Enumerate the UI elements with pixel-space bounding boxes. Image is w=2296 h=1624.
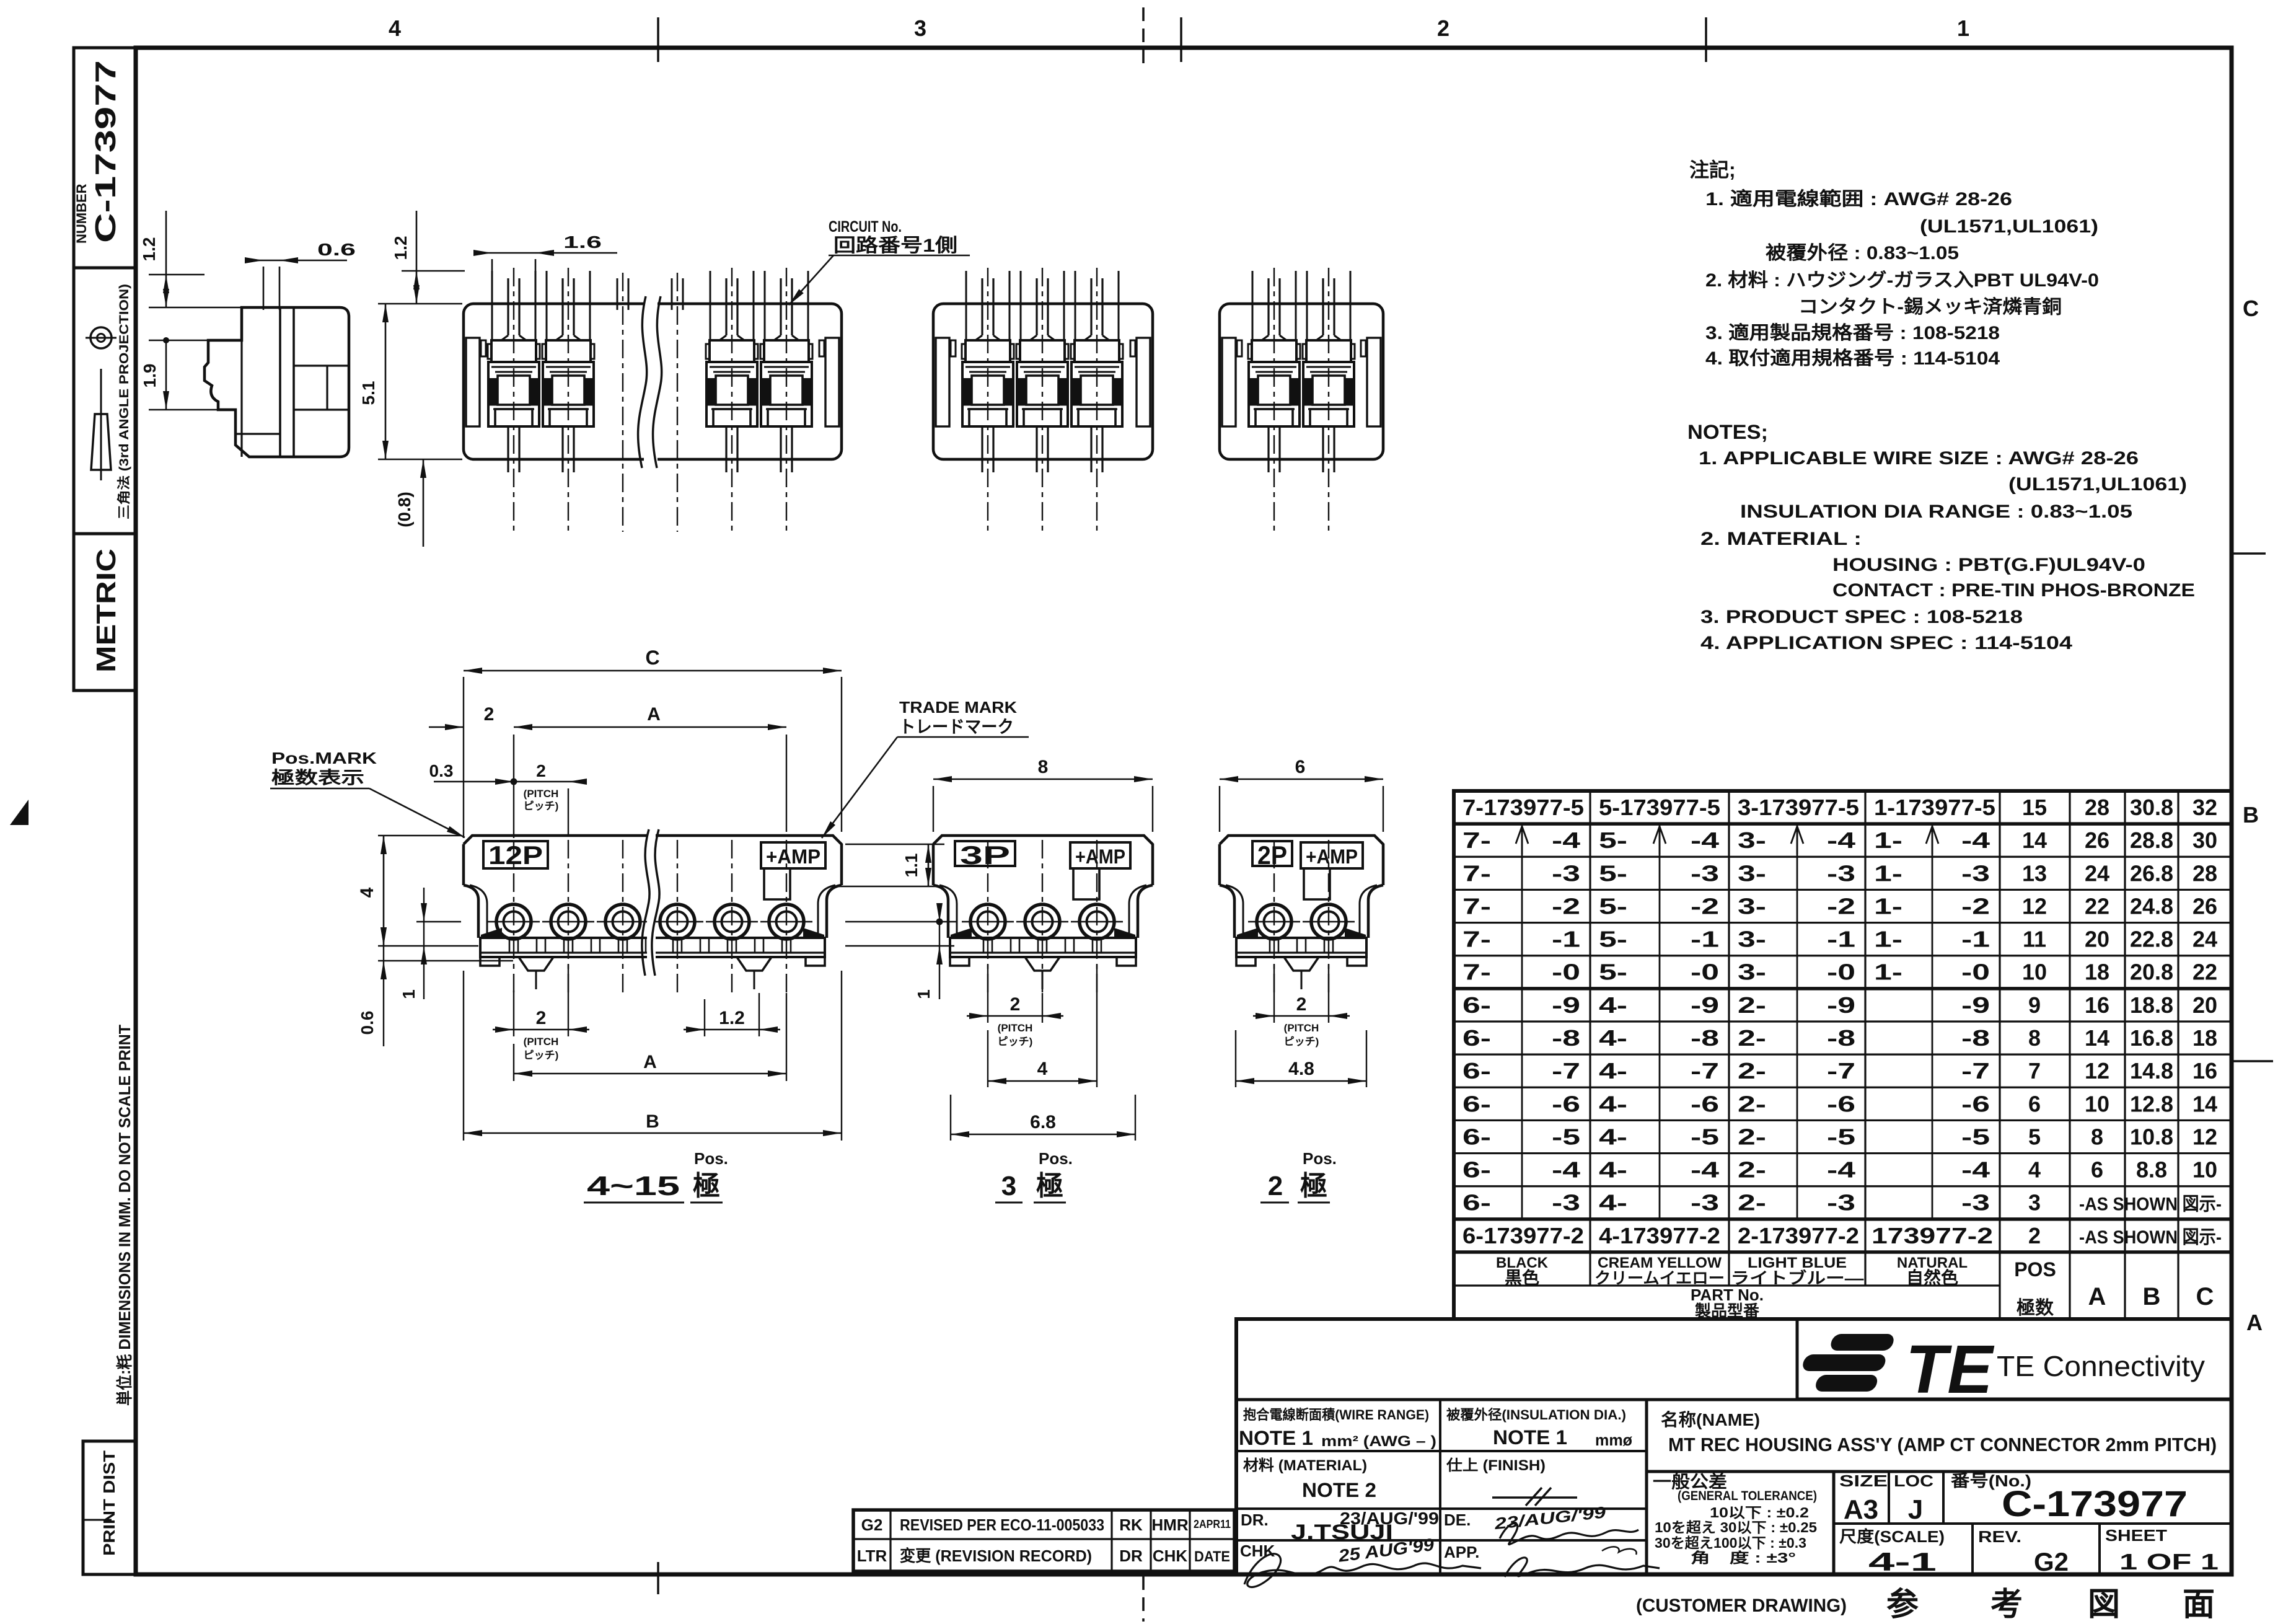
svg-text:4-173977-2: 4-173977-2 (1599, 1223, 1720, 1248)
svg-text:10.8: 10.8 (2130, 1124, 2173, 1149)
svg-text:-2: -2 (1827, 893, 1855, 919)
svg-text:3P: 3P (960, 841, 1010, 870)
svg-text:-5: -5 (1552, 1124, 1580, 1149)
svg-text:黒色: 黒色 (1505, 1268, 1539, 1287)
svg-text:-8: -8 (1961, 1025, 1990, 1051)
svg-text:+AMP: +AMP (766, 845, 820, 868)
svg-text:12: 12 (2193, 1124, 2217, 1149)
svg-text:2: 2 (2028, 1223, 2041, 1248)
svg-text:(0.8): (0.8) (395, 492, 414, 527)
svg-text:-1: -1 (1691, 927, 1719, 952)
svg-text:28: 28 (2193, 860, 2217, 886)
svg-text:24: 24 (2193, 927, 2217, 952)
svg-text:-4: -4 (1827, 1157, 1855, 1183)
svg-text:6-: 6- (1462, 1124, 1491, 1149)
svg-text:4. 取付適用規格番号 : 114-5104: 4. 取付適用規格番号 : 114-5104 (1705, 348, 2000, 369)
svg-text:6-: 6- (1462, 1190, 1491, 1216)
svg-text:極数: 極数 (2017, 1298, 2054, 1318)
svg-text:14: 14 (2022, 827, 2047, 853)
svg-text:1-: 1- (1874, 827, 1902, 853)
svg-text:1.9: 1.9 (140, 364, 159, 388)
svg-text:-3: -3 (1552, 860, 1580, 886)
svg-text:-7: -7 (1691, 1058, 1719, 1083)
svg-text:6.8: 6.8 (1030, 1112, 1056, 1132)
svg-text:G2: G2 (861, 1516, 883, 1534)
svg-text:NOTES;: NOTES; (1687, 421, 1768, 443)
svg-text:10を超え 30以下 : ±0.25: 10を超え 30以下 : ±0.25 (1655, 1519, 1817, 1535)
svg-text:コンタクト-錫メッキ済燐青銅: コンタクト-錫メッキ済燐青銅 (1798, 296, 2062, 317)
svg-text:6-: 6- (1462, 1025, 1491, 1051)
svg-text:J.TSUJI: J.TSUJI (1291, 1520, 1393, 1544)
svg-text:18: 18 (2085, 960, 2109, 985)
svg-text:図: 図 (2088, 1587, 2120, 1623)
svg-text:REV.: REV. (1978, 1527, 2021, 1546)
svg-text:-4: -4 (1961, 827, 1990, 853)
svg-text:2. MATERIAL :: 2. MATERIAL : (1700, 529, 1862, 549)
svg-text:-3: -3 (1827, 860, 1855, 886)
svg-text:変更 (REVISION RECORD): 変更 (REVISION RECORD) (900, 1547, 1092, 1565)
svg-text:-4: -4 (1827, 827, 1855, 853)
svg-text:3. PRODUCT SPEC : 108-5218: 3. PRODUCT SPEC : 108-5218 (1700, 607, 2023, 627)
svg-text:7-: 7- (1462, 860, 1491, 886)
svg-text:1: 1 (399, 989, 418, 999)
svg-text:20: 20 (2085, 927, 2109, 952)
svg-text:-2: -2 (1552, 893, 1580, 919)
svg-text:3. 適用製品規格番号 : 108-5218: 3. 適用製品規格番号 : 108-5218 (1705, 322, 2000, 343)
svg-text:LOC: LOC (1894, 1472, 1933, 1490)
svg-text:4.8: 4.8 (1288, 1059, 1314, 1079)
svg-text:-6: -6 (1691, 1091, 1719, 1116)
svg-text:4: 4 (357, 887, 377, 898)
svg-text:3: 3 (1001, 1171, 1016, 1201)
svg-text:A: A (643, 1052, 657, 1072)
svg-text:12: 12 (2085, 1058, 2109, 1083)
svg-text:5-: 5- (1599, 827, 1627, 853)
svg-text:2P: 2P (1257, 841, 1287, 870)
svg-text:-2: -2 (1691, 893, 1719, 919)
svg-text:4-1: 4-1 (1868, 1547, 1937, 1576)
svg-text:極: 極 (1036, 1171, 1063, 1201)
svg-text:CHK: CHK (1240, 1542, 1275, 1560)
svg-text:1: 1 (914, 989, 933, 999)
svg-text:2: 2 (1268, 1171, 1283, 1201)
svg-text:METRIC: METRIC (91, 549, 121, 673)
svg-text:-3: -3 (1691, 1190, 1719, 1216)
svg-text:30を超え100以下 : ±0.3: 30を超え100以下 : ±0.3 (1655, 1535, 1806, 1551)
svg-text:6-: 6- (1462, 1157, 1491, 1183)
svg-text:2-: 2- (1738, 1124, 1766, 1149)
svg-text:考: 考 (1990, 1587, 2023, 1623)
svg-text:-4: -4 (1552, 827, 1580, 853)
svg-text:極: 極 (1300, 1171, 1327, 1201)
svg-text:8.8: 8.8 (2136, 1157, 2167, 1183)
svg-text:RK: RK (1119, 1516, 1143, 1534)
svg-text:9: 9 (2028, 992, 2041, 1018)
svg-text:-9: -9 (1691, 992, 1719, 1018)
svg-text:32: 32 (2193, 795, 2217, 820)
svg-text:-3: -3 (1552, 1190, 1580, 1216)
svg-text:-9: -9 (1961, 992, 1990, 1018)
svg-text:-8: -8 (1691, 1025, 1719, 1051)
svg-text:-9: -9 (1552, 992, 1580, 1018)
svg-text:6-173977-2: 6-173977-2 (1462, 1223, 1584, 1248)
svg-text:-8: -8 (1827, 1025, 1855, 1051)
svg-text:TE: TE (1906, 1331, 1995, 1408)
svg-text:C-173977: C-173977 (2002, 1484, 2188, 1524)
svg-text:26.8: 26.8 (2130, 860, 2173, 886)
svg-text:4~15: 4~15 (587, 1171, 680, 1201)
svg-text:(CUSTOMER DRAWING): (CUSTOMER DRAWING) (1636, 1595, 1847, 1616)
svg-text:3-: 3- (1738, 893, 1766, 919)
svg-text:NOTE 1: NOTE 1 (1239, 1427, 1313, 1449)
svg-text:被覆外径(INSULATION DIA.): 被覆外径(INSULATION DIA.) (1446, 1407, 1626, 1423)
svg-text:7-: 7- (1462, 893, 1491, 919)
svg-text:10: 10 (2085, 1091, 2109, 1116)
svg-text:11: 11 (2023, 927, 2046, 952)
svg-text:(UL1571,UL1061): (UL1571,UL1061) (1920, 216, 2098, 237)
svg-text:2-: 2- (1738, 1157, 1766, 1183)
svg-text:mm² (AWG – ): mm² (AWG – ) (1321, 1433, 1436, 1450)
svg-text:1. APPLICABLE WIRE SIZE : AWG#: 1. APPLICABLE WIRE SIZE : AWG# 28-26 (1699, 448, 2139, 469)
svg-text:-6: -6 (1827, 1091, 1855, 1116)
svg-text:単位:粍 DIMENSIONS IN MM. DO NOT: 単位:粍 DIMENSIONS IN MM. DO NOT SCALE PRIN… (115, 1025, 134, 1406)
svg-text:-3: -3 (1961, 860, 1990, 886)
svg-text:4-: 4- (1599, 1058, 1627, 1083)
svg-text:2-: 2- (1738, 1091, 1766, 1116)
svg-text:-6: -6 (1961, 1091, 1990, 1116)
svg-text:3-173977-5: 3-173977-5 (1738, 795, 1859, 820)
svg-text:ピッチ): ピッチ) (524, 800, 559, 812)
svg-text:-6: -6 (1552, 1091, 1580, 1116)
svg-text:-7: -7 (1827, 1058, 1855, 1083)
svg-text:6: 6 (2091, 1157, 2103, 1183)
svg-text:J: J (1908, 1494, 1923, 1525)
svg-text:12P: 12P (488, 841, 543, 870)
svg-text:Pos.: Pos. (1039, 1149, 1073, 1168)
svg-text:20.8: 20.8 (2130, 960, 2173, 985)
svg-text:DR: DR (1119, 1547, 1143, 1565)
svg-text:SHEET: SHEET (2105, 1526, 2167, 1545)
svg-text:26: 26 (2085, 827, 2109, 853)
svg-text:-3: -3 (1961, 1190, 1990, 1216)
svg-text:PRINT DIST: PRINT DIST (100, 1450, 118, 1556)
svg-text:4-: 4- (1599, 1157, 1627, 1183)
svg-text:1.2: 1.2 (391, 236, 410, 260)
svg-text:C: C (2196, 1283, 2214, 1310)
svg-text:INSULATION DIA RANGE : 0.83~1.: INSULATION DIA RANGE : 0.83~1.05 (1740, 501, 2132, 522)
svg-text:SIZE: SIZE (1839, 1472, 1888, 1490)
svg-text:4: 4 (2028, 1157, 2041, 1183)
svg-text:HMR: HMR (1151, 1516, 1188, 1534)
svg-text:0.3: 0.3 (429, 761, 454, 780)
svg-text:4-: 4- (1599, 1025, 1627, 1051)
svg-text:(PITCH: (PITCH (998, 1022, 1033, 1034)
svg-text:3: 3 (2028, 1190, 2041, 1216)
svg-text:16: 16 (2193, 1058, 2217, 1083)
svg-text:LTR: LTR (857, 1547, 887, 1565)
svg-text:-7: -7 (1961, 1058, 1990, 1083)
svg-text:-AS SHOWN 図示-: -AS SHOWN 図示- (2079, 1227, 2222, 1248)
svg-text:2: 2 (536, 761, 546, 780)
svg-text:10: 10 (2022, 960, 2047, 985)
svg-text:A3: A3 (1844, 1494, 1878, 1525)
svg-text:8: 8 (1038, 757, 1049, 777)
svg-text:7-173977-5: 7-173977-5 (1462, 795, 1584, 820)
svg-text:6: 6 (2028, 1091, 2041, 1116)
svg-text:26: 26 (2193, 893, 2217, 919)
svg-text:+AMP: +AMP (1075, 845, 1125, 868)
svg-text:B: B (2243, 802, 2259, 827)
svg-text:仕上 (FINISH): 仕上 (FINISH) (1446, 1457, 1546, 1474)
svg-text:6-: 6- (1462, 992, 1491, 1018)
svg-text:尺度(SCALE): 尺度(SCALE) (1839, 1527, 1945, 1546)
svg-text:(GENERAL TOLERANCE): (GENERAL TOLERANCE) (1678, 1489, 1817, 1503)
svg-text:1-: 1- (1874, 893, 1902, 919)
svg-text:4-: 4- (1599, 1190, 1627, 1216)
svg-text:角 度 : ±3°: 角 度 : ±3° (1691, 1550, 1796, 1566)
svg-text:注記;: 注記; (1689, 159, 1736, 181)
svg-text:2: 2 (1437, 15, 1449, 41)
svg-text:-5: -5 (1827, 1124, 1855, 1149)
svg-text:14: 14 (2193, 1091, 2217, 1116)
svg-text:1.6: 1.6 (563, 232, 602, 252)
svg-text:C: C (645, 647, 659, 669)
svg-text:30.8: 30.8 (2130, 795, 2173, 820)
svg-text:NUMBER: NUMBER (74, 183, 89, 244)
svg-text:2: 2 (484, 704, 495, 725)
svg-text:Pos.: Pos. (1303, 1149, 1337, 1168)
svg-text:28: 28 (2085, 795, 2109, 820)
svg-text:10: 10 (2193, 1157, 2217, 1183)
svg-text:18.8: 18.8 (2130, 992, 2173, 1018)
svg-text:6: 6 (1295, 757, 1306, 777)
svg-text:6-: 6- (1462, 1058, 1491, 1083)
svg-text:2. 材料 : ハウジング-ガラス入PBT UL94V-0: 2. 材料 : ハウジング-ガラス入PBT UL94V-0 (1705, 270, 2099, 291)
svg-text:Pos.MARK: Pos.MARK (271, 749, 377, 767)
svg-text:1-173977-5: 1-173977-5 (1874, 795, 1995, 820)
svg-text:-1: -1 (1961, 927, 1990, 952)
svg-text:Pos.: Pos. (694, 1149, 728, 1168)
svg-text:C: C (2243, 296, 2259, 321)
svg-text:5-: 5- (1599, 860, 1627, 886)
svg-text:1-: 1- (1874, 960, 1902, 985)
svg-text:ライトブルー―: ライトブルー― (1731, 1269, 1864, 1287)
svg-text:8: 8 (2028, 1025, 2041, 1051)
svg-text:1.1: 1.1 (902, 854, 921, 878)
svg-text:-4: -4 (1552, 1157, 1580, 1183)
svg-text:2-: 2- (1738, 1058, 1766, 1083)
svg-text:CIRCUIT No.: CIRCUIT No. (829, 218, 902, 236)
svg-text:7-: 7- (1462, 927, 1491, 952)
svg-text:-5: -5 (1691, 1124, 1719, 1149)
svg-text:-3: -3 (1827, 1190, 1855, 1216)
svg-text:-1: -1 (1827, 927, 1855, 952)
svg-text:7-: 7- (1462, 827, 1491, 853)
svg-text:14.8: 14.8 (2130, 1058, 2173, 1083)
svg-text:G2: G2 (2034, 1547, 2069, 1576)
svg-text:TRADE MARK: TRADE MARK (899, 698, 1017, 717)
svg-text:22: 22 (2085, 893, 2109, 919)
svg-text:A: A (647, 704, 661, 725)
svg-text:1: 1 (1957, 15, 1969, 41)
svg-text:24: 24 (2085, 860, 2109, 886)
svg-text:CHK: CHK (1153, 1547, 1188, 1565)
svg-text:被覆外径 : 0.83~1.05: 被覆外径 : 0.83~1.05 (1766, 243, 1959, 263)
svg-text:名称(NAME): 名称(NAME) (1661, 1410, 1760, 1429)
svg-text:-4: -4 (1961, 1157, 1990, 1183)
svg-text:2APR11: 2APR11 (1194, 1518, 1231, 1530)
svg-text:24.8: 24.8 (2130, 893, 2173, 919)
svg-text:ピッチ): ピッチ) (998, 1036, 1033, 1048)
svg-text:3: 3 (914, 15, 926, 41)
svg-text:(PITCH: (PITCH (524, 788, 559, 800)
svg-text:7: 7 (2028, 1058, 2041, 1083)
svg-text:mmø: mmø (1595, 1431, 1632, 1449)
svg-text:-4: -4 (1691, 1157, 1719, 1183)
svg-text:-8: -8 (1552, 1025, 1580, 1051)
svg-text:+AMP: +AMP (1306, 845, 1358, 868)
svg-text:NOTE 2: NOTE 2 (1302, 1479, 1376, 1501)
svg-text:1-: 1- (1874, 927, 1902, 952)
svg-text:REVISED PER ECO-11-005033: REVISED PER ECO-11-005033 (900, 1516, 1104, 1534)
svg-text:3-: 3- (1738, 927, 1766, 952)
svg-text:-4: -4 (1691, 827, 1719, 853)
svg-text:5-173977-5: 5-173977-5 (1599, 795, 1720, 820)
svg-text:HOUSING : PBT(G.F)UL94V-0: HOUSING : PBT(G.F)UL94V-0 (1832, 555, 2145, 575)
svg-text:-0: -0 (1552, 960, 1580, 985)
svg-text:C-173977: C-173977 (89, 60, 121, 243)
svg-text:8: 8 (2091, 1124, 2103, 1149)
svg-text:TE Connectivity: TE Connectivity (1997, 1350, 2205, 1382)
svg-text:2-: 2- (1738, 1190, 1766, 1216)
svg-text:-0: -0 (1691, 960, 1719, 985)
svg-text:三角法 (3rd ANGLE PROJECTION): 三角法 (3rd ANGLE PROJECTION) (117, 284, 131, 519)
svg-text:回路番号1側: 回路番号1側 (834, 236, 957, 256)
svg-text:CONTACT : PRE-TIN PHOS-BRONZE: CONTACT : PRE-TIN PHOS-BRONZE (1832, 580, 2195, 601)
svg-text:A: A (2088, 1283, 2106, 1310)
svg-text:1. 適用電線範囲 : AWG# 28-26: 1. 適用電線範囲 : AWG# 28-26 (1705, 188, 2012, 210)
svg-text:173977-2: 173977-2 (1872, 1223, 1993, 1248)
svg-text:14: 14 (2085, 1025, 2109, 1051)
svg-text:-5: -5 (1961, 1124, 1990, 1149)
svg-text:5: 5 (2028, 1124, 2041, 1149)
svg-text:12.8: 12.8 (2130, 1091, 2173, 1116)
svg-text:-7: -7 (1552, 1058, 1580, 1083)
svg-text:4: 4 (389, 15, 401, 41)
svg-text:7-: 7- (1462, 960, 1491, 985)
svg-text:APP.: APP. (1444, 1543, 1479, 1561)
svg-text:B: B (646, 1111, 659, 1132)
svg-text:B: B (2143, 1283, 2161, 1310)
svg-text:面: 面 (2183, 1587, 2215, 1623)
svg-text:(UL1571,UL1061): (UL1571,UL1061) (2008, 474, 2187, 495)
svg-text:1 OF 1: 1 OF 1 (2119, 1549, 2219, 1574)
svg-text:2-173977-2: 2-173977-2 (1738, 1223, 1859, 1248)
svg-text:NOTE 1: NOTE 1 (1493, 1426, 1567, 1449)
svg-text:POS: POS (2014, 1258, 2056, 1281)
svg-text:12: 12 (2022, 893, 2047, 919)
svg-text:10以下 : ±0.2: 10以下 : ±0.2 (1710, 1504, 1809, 1520)
svg-text:28.8: 28.8 (2130, 827, 2173, 853)
svg-text:-2: -2 (1961, 893, 1990, 919)
svg-text:30: 30 (2193, 827, 2217, 853)
svg-text:DE.: DE. (1444, 1511, 1471, 1529)
svg-text:-0: -0 (1961, 960, 1990, 985)
svg-text:ピッチ): ピッチ) (524, 1049, 559, 1061)
svg-text:16.8: 16.8 (2130, 1025, 2173, 1051)
svg-text:4-: 4- (1599, 1124, 1627, 1149)
svg-text:3-: 3- (1738, 860, 1766, 886)
svg-text:1.2: 1.2 (139, 237, 159, 262)
svg-text:-AS SHOWN 図示-: -AS SHOWN 図示- (2079, 1194, 2222, 1215)
svg-text:4-: 4- (1599, 1091, 1627, 1116)
svg-text:22: 22 (2193, 960, 2217, 985)
svg-text:4-: 4- (1599, 992, 1627, 1018)
svg-text:5-: 5- (1599, 927, 1627, 952)
svg-text:-0: -0 (1827, 960, 1855, 985)
svg-text:5-: 5- (1599, 960, 1627, 985)
svg-text:-9: -9 (1827, 992, 1855, 1018)
svg-text:極: 極 (693, 1171, 720, 1201)
svg-text:18: 18 (2193, 1025, 2217, 1051)
svg-text:2-: 2- (1738, 992, 1766, 1018)
svg-text:極数表示: 極数表示 (271, 768, 364, 787)
svg-text:22.8: 22.8 (2130, 927, 2173, 952)
svg-text:6-: 6- (1462, 1091, 1491, 1116)
svg-text:ピッチ): ピッチ) (1284, 1036, 1319, 1048)
svg-text:A: A (2246, 1310, 2263, 1335)
svg-text:-3: -3 (1691, 860, 1719, 886)
svg-text:トレードマーク: トレードマーク (899, 717, 1014, 736)
svg-text:20: 20 (2193, 992, 2217, 1018)
svg-text:1-: 1- (1874, 860, 1902, 886)
svg-text:抱合電線断面積(WIRE RANGE): 抱合電線断面積(WIRE RANGE) (1243, 1407, 1429, 1423)
svg-text:1.2: 1.2 (719, 1008, 745, 1028)
svg-text:2: 2 (1010, 994, 1021, 1015)
svg-text:3-: 3- (1738, 960, 1766, 985)
svg-text:(PITCH: (PITCH (524, 1036, 559, 1048)
svg-text:MT REC HOUSING ASS'Y (AMP CT C: MT REC HOUSING ASS'Y (AMP CT CONNECTOR 2… (1668, 1434, 2217, 1455)
svg-text:15: 15 (2022, 795, 2047, 820)
svg-text:-1: -1 (1552, 927, 1580, 952)
svg-text:5.1: 5.1 (359, 381, 378, 405)
svg-text:0.6: 0.6 (317, 240, 356, 259)
svg-text:0.6: 0.6 (358, 1011, 377, 1035)
svg-text:4: 4 (1037, 1059, 1048, 1079)
svg-text:5-: 5- (1599, 893, 1627, 919)
svg-text:4. APPLICATION SPEC : 114-5104: 4. APPLICATION SPEC : 114-5104 (1700, 633, 2072, 653)
svg-text:3-: 3- (1738, 827, 1766, 853)
svg-text:参: 参 (1886, 1587, 1919, 1623)
svg-text:材料 (MATERIAL): 材料 (MATERIAL) (1243, 1457, 1367, 1474)
svg-text:(PITCH: (PITCH (1284, 1022, 1319, 1034)
svg-text:2: 2 (536, 1008, 547, 1028)
svg-text:2-: 2- (1738, 1025, 1766, 1051)
svg-text:自然色: 自然色 (1906, 1268, 1958, 1287)
svg-text:DR.: DR. (1241, 1511, 1269, 1529)
svg-text:2: 2 (1296, 994, 1307, 1015)
svg-text:13: 13 (2022, 860, 2047, 886)
svg-text:16: 16 (2085, 992, 2109, 1018)
svg-text:クリームイエロー: クリームイエロー (1594, 1269, 1725, 1287)
svg-text:DATE: DATE (1194, 1548, 1230, 1565)
